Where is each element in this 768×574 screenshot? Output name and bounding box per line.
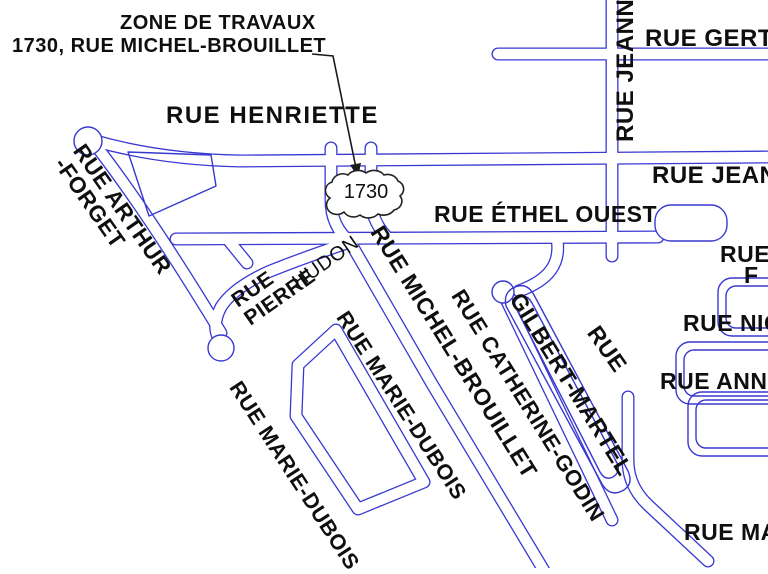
street-label-rue-ma: RUE MA bbox=[684, 521, 768, 544]
street-network-drawing bbox=[0, 0, 768, 568]
cloud-address-number: 1730 bbox=[342, 182, 390, 202]
block-right-c-inner bbox=[696, 400, 768, 448]
work-zone-callout-address: 1730, RUE MICHEL-BROUILLET bbox=[12, 36, 308, 56]
street-label-rue-jeanne-vertical: RUE JEANNE bbox=[614, 0, 638, 142]
cul-de-sac-bulb-pierre-hudon bbox=[208, 335, 234, 361]
map-canvas: ZONE DE TRAVAUX 1730, RUE MICHEL-BROUILL… bbox=[0, 0, 768, 568]
work-zone-map-page: { "callout": { "line1": "ZONE DE TRAVAUX… bbox=[0, 0, 768, 568]
turnaround-bulb-ethel-ouest bbox=[655, 205, 727, 241]
street-label-rue-jeanne-horizontal: RUE JEANN bbox=[652, 164, 768, 188]
street-label-rue-anne: RUE ANNE bbox=[660, 370, 768, 393]
street-label-rue-nic: RUE NIC bbox=[683, 312, 768, 335]
work-zone-callout-title: ZONE DE TRAVAUX bbox=[120, 13, 300, 33]
street-label-rue-henriette: RUE HENRIETTE bbox=[166, 104, 379, 128]
street-label-rue-f-line2: F bbox=[744, 264, 759, 287]
street-label-rue-ethel-ouest: RUE ÉTHEL OUEST bbox=[434, 203, 657, 226]
street-label-rue-gertrude: RUE GERTR bbox=[645, 27, 768, 51]
